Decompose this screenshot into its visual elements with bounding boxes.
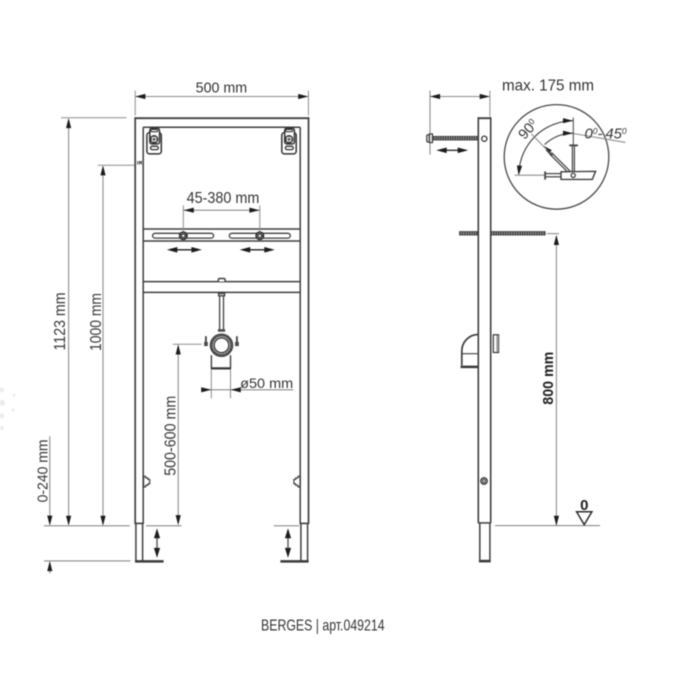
svg-text:800 mm: 800 mm [541,352,557,405]
svg-text:500-600 mm: 500-600 mm [162,396,179,476]
svg-text:45-380 mm: 45-380 mm [187,190,260,207]
svg-text:max. 175 mm: max. 175 mm [502,78,594,95]
svg-text:BERGES | арт.049214: BERGES | арт.049214 [261,617,385,634]
svg-text:1123 mm: 1123 mm [52,293,69,351]
svg-text:0-240 mm: 0-240 mm [35,439,51,502]
svg-text:500 mm: 500 mm [196,80,248,96]
svg-text:ø50 mm: ø50 mm [240,376,293,391]
svg-text:1000 mm: 1000 mm [88,293,105,351]
